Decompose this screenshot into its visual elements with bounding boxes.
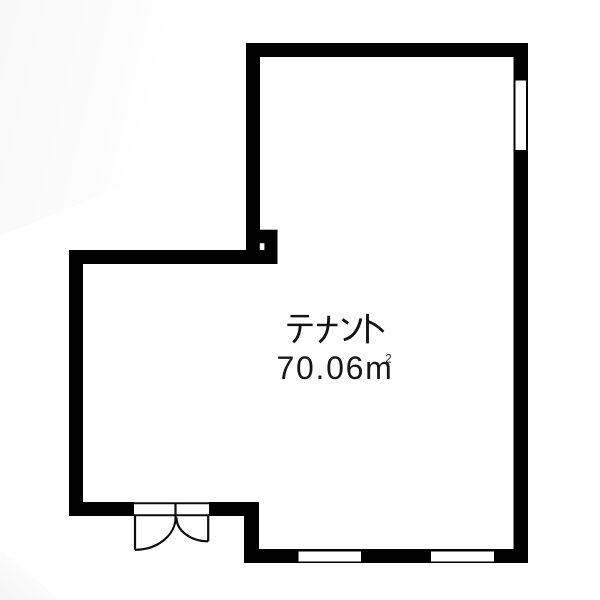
svg-text:2: 2 bbox=[385, 353, 391, 365]
svg-text:70.06m: 70.06m bbox=[277, 350, 394, 386]
